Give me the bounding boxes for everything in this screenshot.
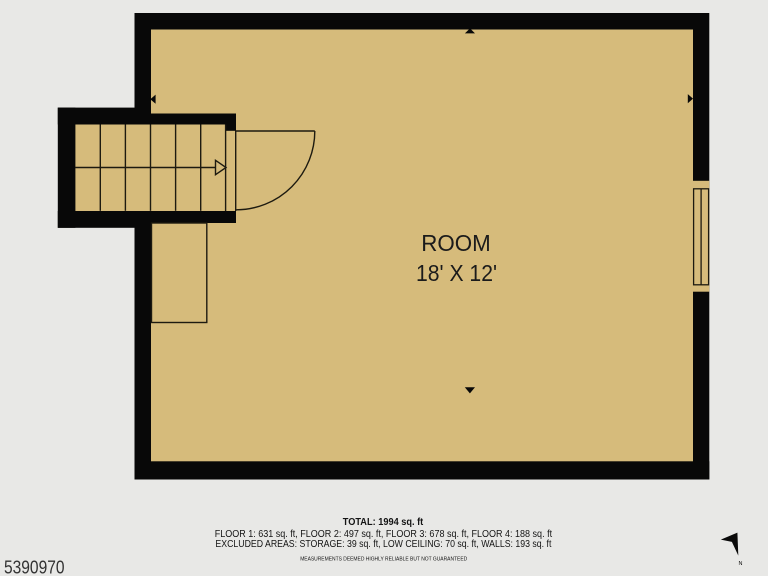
svg-text:EXCLUDED AREAS: STORAGE: 39 sq: EXCLUDED AREAS: STORAGE: 39 sq. ft, LOW … <box>215 539 551 550</box>
svg-text:N: N <box>739 561 743 567</box>
svg-text:TOTAL: 1994 sq. ft: TOTAL: 1994 sq. ft <box>343 517 424 528</box>
svg-text:ROOM: ROOM <box>421 230 491 256</box>
svg-text:MEASUREMENTS DEEMED HIGHLY REL: MEASUREMENTS DEEMED HIGHLY RELIABLE BUT … <box>300 557 467 563</box>
svg-text:18' X 12': 18' X 12' <box>416 260 497 286</box>
svg-text:5390970: 5390970 <box>4 558 65 576</box>
